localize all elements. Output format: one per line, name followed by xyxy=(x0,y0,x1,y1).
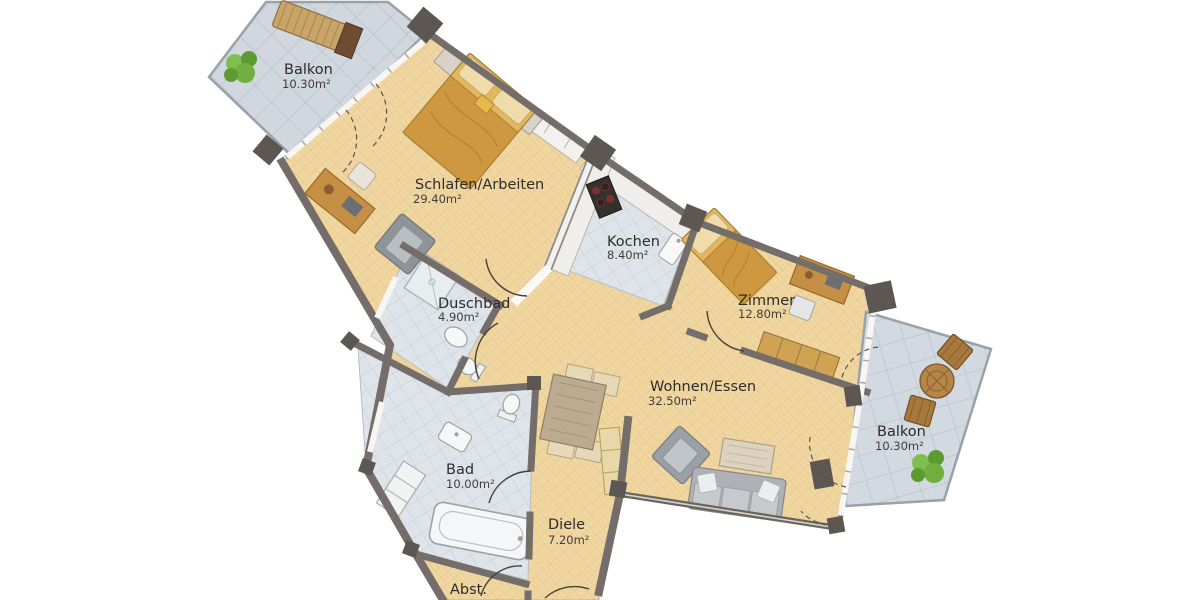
pillar xyxy=(827,516,846,535)
area-balkon-right: 10.30m² xyxy=(875,439,924,453)
label-balkon-top-left: Balkon xyxy=(284,62,333,78)
balcony-table xyxy=(920,364,954,398)
label-diele: Diele xyxy=(548,517,585,533)
area-duschbad: 4.90m² xyxy=(438,310,479,324)
area-kochen: 8.40m² xyxy=(607,248,648,262)
area-wohnen-essen: 32.50m² xyxy=(648,394,697,408)
label-wohnen-essen: Wohnen/Essen xyxy=(650,379,756,395)
label-balkon-right: Balkon xyxy=(877,424,926,440)
label-abstellraum: Abst. xyxy=(450,582,487,598)
area-balkon-top-left: 10.30m² xyxy=(282,77,331,91)
area-diele: 7.20m² xyxy=(548,533,589,547)
area-schlafen-arbeiten: 29.40m² xyxy=(413,192,462,206)
floor-plan-drawing: Balkon 10.30m² Schlafen/Arbeiten 29.40m²… xyxy=(0,0,1200,600)
pillar xyxy=(863,280,896,313)
area-zimmer: 12.80m² xyxy=(738,307,787,321)
label-bad: Bad xyxy=(446,462,474,478)
pillar xyxy=(844,385,863,407)
label-schlafen-arbeiten: Schlafen/Arbeiten xyxy=(415,177,544,193)
pillar xyxy=(609,480,628,499)
pillar xyxy=(527,376,541,390)
area-bad: 10.00m² xyxy=(446,477,495,491)
floor-plan-page: Balkon 10.30m² Schlafen/Arbeiten 29.40m²… xyxy=(0,0,1200,600)
